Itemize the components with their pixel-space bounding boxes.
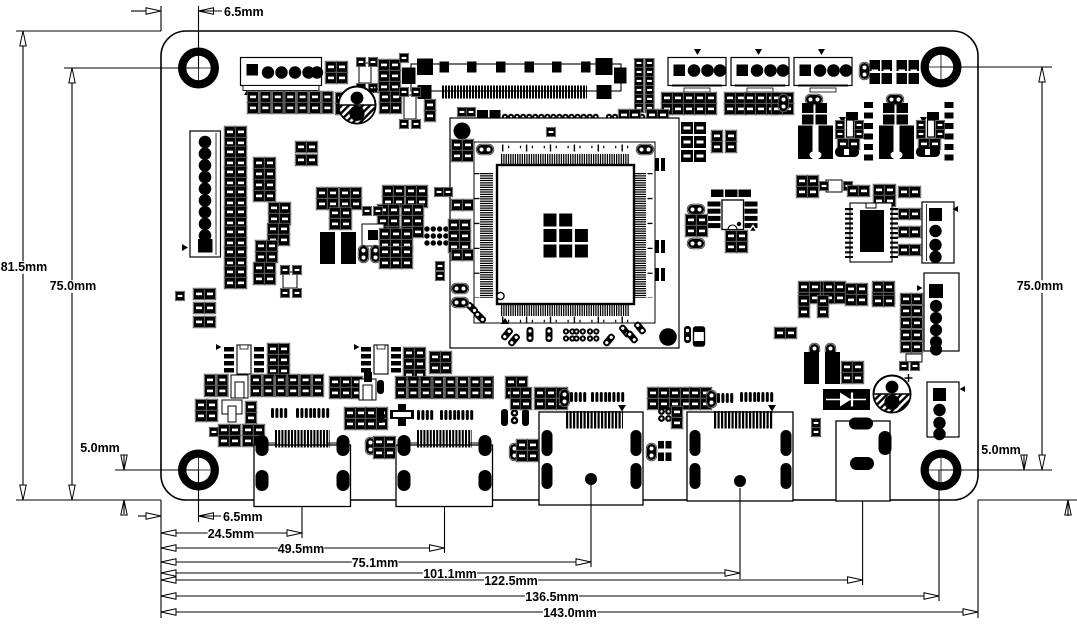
- svg-text:75.0mm: 75.0mm: [1017, 279, 1064, 293]
- svg-text:75.1mm: 75.1mm: [352, 556, 399, 570]
- svg-text:75.0mm: 75.0mm: [50, 279, 97, 293]
- svg-text:5.0mm: 5.0mm: [981, 443, 1021, 457]
- svg-text:5.0mm: 5.0mm: [80, 441, 120, 455]
- svg-text:24.5mm: 24.5mm: [208, 527, 255, 541]
- svg-text:6.5mm: 6.5mm: [223, 510, 263, 524]
- svg-text:136.5mm: 136.5mm: [525, 590, 579, 604]
- svg-text:122.5mm: 122.5mm: [484, 574, 538, 588]
- svg-text:81.5mm: 81.5mm: [1, 260, 48, 274]
- svg-text:143.0mm: 143.0mm: [543, 606, 597, 620]
- svg-text:49.5mm: 49.5mm: [278, 542, 325, 556]
- svg-text:6.5mm: 6.5mm: [224, 5, 264, 19]
- svg-text:101.1mm: 101.1mm: [423, 567, 477, 581]
